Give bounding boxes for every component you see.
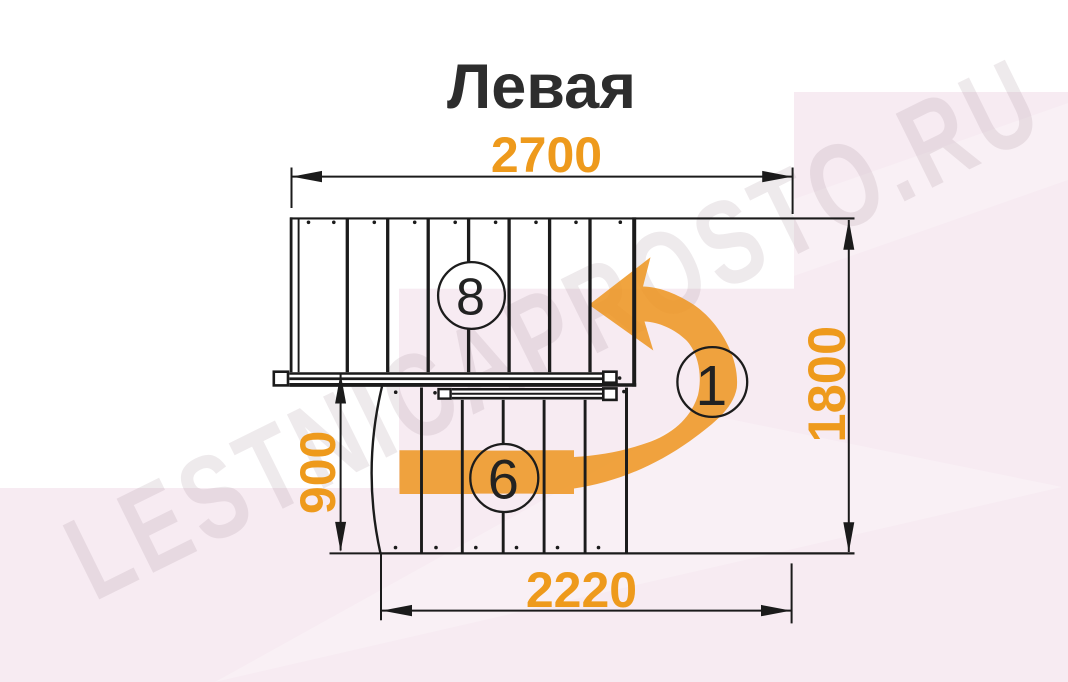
svg-text:900: 900 — [290, 431, 346, 514]
svg-text:Левая: Левая — [447, 52, 636, 122]
svg-text:1800: 1800 — [798, 326, 857, 443]
svg-text:1: 1 — [695, 354, 727, 418]
svg-text:2220: 2220 — [526, 562, 637, 618]
svg-text:8: 8 — [456, 269, 485, 327]
svg-text:6: 6 — [488, 447, 519, 510]
svg-text:2700: 2700 — [491, 127, 602, 183]
